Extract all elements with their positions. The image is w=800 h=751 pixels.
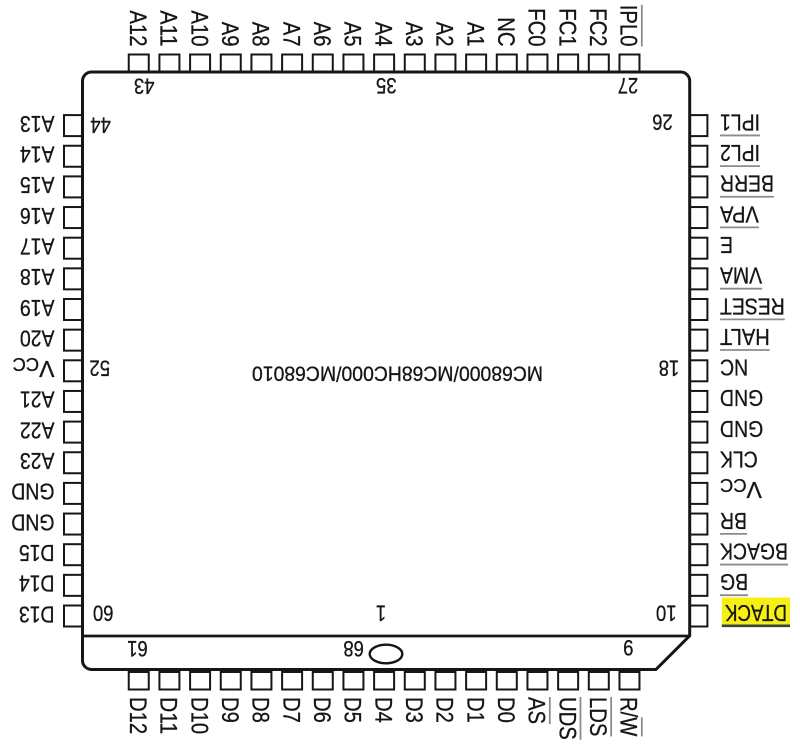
svg-text:A13: A13 <box>20 111 55 137</box>
svg-text:A3: A3 <box>400 22 427 47</box>
svg-text:A9: A9 <box>216 22 243 47</box>
svg-text:18: 18 <box>659 355 680 380</box>
svg-text:26: 26 <box>652 109 673 134</box>
svg-text:D11: D11 <box>155 697 182 734</box>
svg-text:GND: GND <box>11 479 54 505</box>
svg-text:D0: D0 <box>492 697 519 723</box>
svg-text:A20: A20 <box>20 325 55 351</box>
svg-text:HALT: HALT <box>720 324 770 350</box>
svg-text:68: 68 <box>343 636 364 661</box>
svg-text:BERR: BERR <box>720 171 774 197</box>
svg-text:A21: A21 <box>20 387 55 413</box>
svg-text:D3: D3 <box>400 697 427 723</box>
svg-text:52: 52 <box>90 355 111 380</box>
svg-text:FC1: FC1 <box>553 8 580 46</box>
svg-text:9: 9 <box>623 635 633 660</box>
svg-text:D14: D14 <box>19 571 55 597</box>
svg-text:10: 10 <box>656 600 677 625</box>
svg-text:MC68000/MC68HC000/MC68010: MC68000/MC68HC000/MC68010 <box>252 361 543 384</box>
svg-text:NC: NC <box>492 17 519 46</box>
svg-text:CLK: CLK <box>719 447 757 473</box>
svg-text:A6: A6 <box>308 22 335 47</box>
svg-text:GND: GND <box>720 416 763 442</box>
svg-text:D6: D6 <box>308 697 335 723</box>
svg-text:A22: A22 <box>20 417 55 443</box>
svg-text:A1: A1 <box>461 22 488 47</box>
svg-text:UDS: UDS <box>553 697 580 740</box>
svg-text:D8: D8 <box>247 697 274 723</box>
svg-text:BGACK: BGACK <box>719 538 788 564</box>
svg-text:A14: A14 <box>20 142 55 168</box>
svg-text:D12: D12 <box>124 697 151 734</box>
svg-text:A15: A15 <box>20 172 55 198</box>
svg-text:A8: A8 <box>247 22 274 47</box>
svg-text:44: 44 <box>90 112 111 137</box>
svg-text:D5: D5 <box>339 697 366 723</box>
svg-text:IPL2: IPL2 <box>720 140 760 166</box>
svg-text:D2: D2 <box>431 697 458 723</box>
svg-text:IPL1: IPL1 <box>720 109 760 135</box>
svg-text:A5: A5 <box>339 22 366 47</box>
svg-text:D13: D13 <box>19 601 55 627</box>
svg-text:A23: A23 <box>20 448 55 474</box>
svg-text:VMA: VMA <box>719 263 762 289</box>
svg-text:A4: A4 <box>369 22 396 47</box>
svg-text:AS: AS <box>523 697 550 724</box>
svg-text:A19: A19 <box>20 295 55 321</box>
svg-text:D1: D1 <box>461 697 488 723</box>
svg-text:GND: GND <box>11 509 54 535</box>
svg-text:IPL0: IPL0 <box>615 5 642 47</box>
svg-text:A16: A16 <box>20 203 55 229</box>
svg-text:43: 43 <box>134 73 155 98</box>
svg-text:1: 1 <box>376 600 386 625</box>
svg-text:A11: A11 <box>155 10 182 46</box>
svg-text:A10: A10 <box>185 10 212 46</box>
svg-text:BR: BR <box>720 508 747 534</box>
svg-text:A12: A12 <box>124 10 151 46</box>
svg-text:60: 60 <box>93 600 114 625</box>
svg-text:R/W: R/W <box>615 697 642 737</box>
svg-text:E: E <box>720 232 733 258</box>
svg-text:NC: NC <box>720 355 748 381</box>
svg-text:D9: D9 <box>216 697 243 723</box>
svg-text:FC0: FC0 <box>523 8 550 46</box>
svg-text:A18: A18 <box>20 264 55 290</box>
svg-text:A2: A2 <box>431 22 458 47</box>
svg-text:61: 61 <box>127 636 148 661</box>
svg-text:FC2: FC2 <box>584 8 611 46</box>
svg-text:D10: D10 <box>185 697 212 734</box>
svg-text:35: 35 <box>376 73 397 98</box>
svg-text:D4: D4 <box>369 697 396 723</box>
svg-text:27: 27 <box>618 73 639 98</box>
svg-text:BG: BG <box>720 569 748 595</box>
svg-text:VPA: VPA <box>719 201 758 227</box>
svg-text:A7: A7 <box>277 22 304 47</box>
svg-text:LDS: LDS <box>584 697 611 736</box>
svg-text:D7: D7 <box>277 697 304 723</box>
svg-text:GND: GND <box>720 385 763 411</box>
svg-text:RESET: RESET <box>720 293 785 319</box>
svg-text:A17: A17 <box>20 233 55 259</box>
svg-text:D15: D15 <box>19 540 55 566</box>
svg-text:DTACK: DTACK <box>724 600 787 626</box>
